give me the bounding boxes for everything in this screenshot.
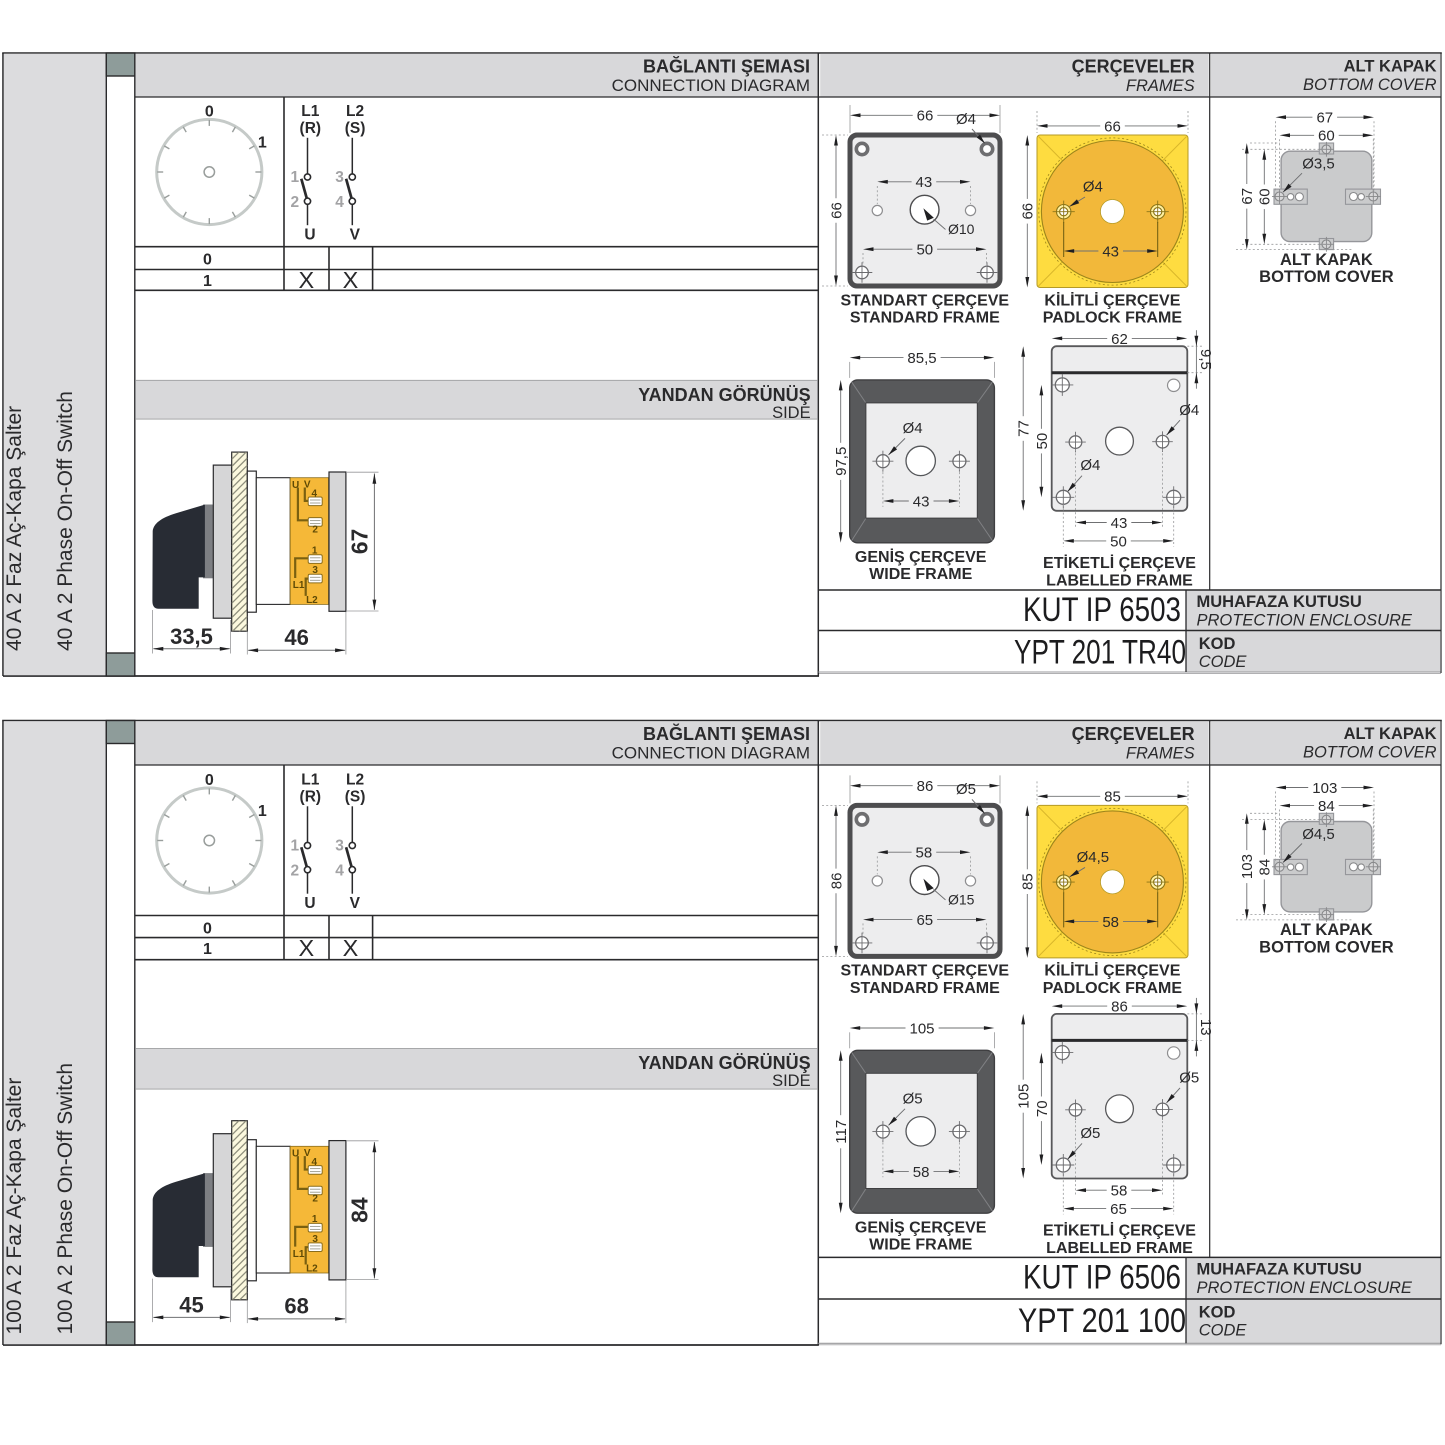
svg-text:CODE: CODE [1199,653,1248,671]
svg-text:LABELLED FRAME: LABELLED FRAME [1046,1240,1193,1257]
svg-text:BOTTOM COVER: BOTTOM COVER [1259,939,1394,957]
svg-text:KUT IP 6503: KUT IP 6503 [1023,591,1181,629]
svg-text:BAĞLANTI ŞEMASI: BAĞLANTI ŞEMASI [643,56,810,77]
svg-text:Ø4: Ø4 [1083,179,1103,196]
svg-text:PADLOCK FRAME: PADLOCK FRAME [1043,310,1183,327]
svg-text:13: 13 [1197,1019,1214,1036]
svg-text:GENİŞ ÇERÇEVE: GENİŞ ÇERÇEVE [855,1218,987,1236]
svg-text:Ø5: Ø5 [1080,1125,1100,1142]
svg-text:66: 66 [1104,118,1121,135]
svg-text:Ø5: Ø5 [956,781,976,798]
svg-text:Ø4,5: Ø4,5 [1077,849,1110,866]
svg-text:85: 85 [1020,873,1037,890]
svg-text:STANDART ÇERÇEVE: STANDART ÇERÇEVE [840,963,1009,980]
svg-text:1: 1 [290,169,299,186]
svg-text:(R): (R) [300,120,322,137]
svg-text:58: 58 [913,1164,930,1181]
svg-text:L1: L1 [293,1249,305,1260]
svg-text:L2: L2 [346,772,364,789]
svg-text:X: X [343,935,359,961]
svg-text:L1: L1 [293,580,305,591]
svg-text:0: 0 [203,252,212,269]
svg-text:58: 58 [1111,1183,1128,1200]
svg-text:L2: L2 [346,103,364,120]
svg-text:33,5: 33,5 [170,624,213,649]
svg-text:U: U [304,227,315,244]
svg-text:105: 105 [1016,1084,1033,1109]
svg-text:(S): (S) [345,788,366,805]
svg-text:84: 84 [1257,859,1274,876]
svg-text:3: 3 [312,565,318,576]
svg-text:Ø3,5: Ø3,5 [1302,156,1335,173]
svg-text:BOTTOM COVER: BOTTOM COVER [1259,268,1394,286]
svg-text:85,5: 85,5 [907,350,936,367]
svg-text:1: 1 [258,135,267,152]
svg-text:103: 103 [1239,854,1256,879]
svg-text:MUHAFAZA KUTUSU: MUHAFAZA KUTUSU [1197,593,1362,611]
svg-text:STANDARD FRAME: STANDARD FRAME [850,310,1000,327]
svg-text:3: 3 [335,838,344,855]
svg-text:(R): (R) [300,788,322,805]
svg-text:68: 68 [284,1294,308,1319]
svg-text:BOTTOM COVER: BOTTOM COVER [1303,76,1437,94]
svg-text:KOD: KOD [1199,635,1236,653]
svg-text:ALT KAPAK: ALT KAPAK [1280,251,1373,269]
svg-text:3: 3 [312,1234,318,1245]
svg-text:SIDE: SIDE [772,1072,811,1090]
svg-text:85: 85 [1104,789,1121,806]
svg-text:2: 2 [290,194,299,211]
svg-text:1: 1 [312,1214,318,1225]
svg-text:KİLİTLİ ÇERÇEVE: KİLİTLİ ÇERÇEVE [1044,962,1180,980]
svg-text:43: 43 [1111,515,1128,532]
svg-text:SIDE: SIDE [772,404,811,422]
svg-text:MUHAFAZA KUTUSU: MUHAFAZA KUTUSU [1197,1260,1362,1278]
svg-text:U: U [292,1148,299,1159]
svg-text:1: 1 [203,273,212,290]
svg-text:86: 86 [1111,999,1128,1016]
svg-text:YANDAN GÖRÜNÜŞ: YANDAN GÖRÜNÜŞ [638,385,810,405]
svg-text:LABELLED FRAME: LABELLED FRAME [1046,572,1193,589]
svg-text:45: 45 [179,1293,203,1318]
svg-text:PROTECTION ENCLOSURE: PROTECTION ENCLOSURE [1197,1279,1413,1297]
svg-text:YPT 201 TR40: YPT 201 TR40 [1014,634,1186,672]
svg-text:ETİKETLİ ÇERÇEVE: ETİKETLİ ÇERÇEVE [1043,1222,1196,1240]
svg-text:66: 66 [1020,203,1037,220]
svg-text:40 A 2 Faz Aç-Kapa Şalter: 40 A 2 Faz Aç-Kapa Şalter [3,406,26,651]
svg-text:3: 3 [335,169,344,186]
svg-text:GENİŞ ÇERÇEVE: GENİŞ ÇERÇEVE [855,548,987,566]
svg-text:65: 65 [1110,1201,1127,1218]
svg-text:V: V [350,895,361,912]
svg-text:PROTECTION ENCLOSURE: PROTECTION ENCLOSURE [1197,612,1413,630]
svg-text:Ø4: Ø4 [1080,457,1100,474]
svg-text:2: 2 [312,525,318,536]
svg-text:WIDE FRAME: WIDE FRAME [869,566,972,583]
svg-text:BAĞLANTI ŞEMASI: BAĞLANTI ŞEMASI [643,723,810,744]
svg-text:43: 43 [1102,243,1119,260]
svg-text:Ø15: Ø15 [948,891,975,907]
svg-text:2: 2 [312,1193,318,1204]
svg-text:50: 50 [1110,533,1127,550]
svg-text:105: 105 [909,1020,934,1037]
svg-text:YPT 201 100: YPT 201 100 [1018,1302,1186,1340]
svg-text:Ø4,5: Ø4,5 [1302,826,1335,843]
svg-text:Ø10: Ø10 [948,221,975,237]
svg-text:0: 0 [205,772,214,789]
svg-text:77: 77 [1016,420,1033,437]
svg-text:2: 2 [290,862,299,879]
svg-text:V: V [304,1148,311,1159]
svg-text:43: 43 [916,174,933,191]
svg-text:V: V [304,479,311,490]
svg-text:50: 50 [1034,433,1051,450]
svg-text:40 A 2 Phase On-Off Switch: 40 A 2 Phase On-Off Switch [54,391,77,651]
svg-text:0: 0 [205,104,214,121]
svg-text:STANDART ÇERÇEVE: STANDART ÇERÇEVE [840,292,1009,309]
svg-text:1: 1 [290,838,299,855]
svg-text:KUT IP 6506: KUT IP 6506 [1023,1258,1181,1296]
svg-text:FRAMES: FRAMES [1126,77,1195,95]
svg-text:Ø5: Ø5 [1179,1070,1199,1087]
svg-text:Ø4: Ø4 [1179,402,1199,419]
svg-text:ALT KAPAK: ALT KAPAK [1344,58,1437,76]
svg-text:YANDAN GÖRÜNÜŞ: YANDAN GÖRÜNÜŞ [638,1053,810,1073]
svg-text:60: 60 [1257,188,1274,205]
svg-text:ALT KAPAK: ALT KAPAK [1344,725,1437,743]
svg-text:ETİKETLİ ÇERÇEVE: ETİKETLİ ÇERÇEVE [1043,554,1196,572]
svg-text:62: 62 [1111,331,1128,348]
svg-text:100 A 2 Phase On-Off Switch: 100 A 2 Phase On-Off Switch [54,1063,77,1335]
svg-text:FRAMES: FRAMES [1126,745,1195,763]
svg-text:0: 0 [203,920,212,937]
svg-text:STANDARD FRAME: STANDARD FRAME [850,980,1000,997]
svg-text:60: 60 [1318,128,1335,145]
svg-text:4: 4 [312,1157,318,1168]
svg-text:67: 67 [1239,188,1256,205]
svg-text:(S): (S) [345,120,366,137]
svg-text:X: X [343,267,359,293]
svg-text:65: 65 [916,912,933,929]
svg-text:67: 67 [1316,110,1333,127]
svg-text:66: 66 [917,108,934,125]
svg-text:4: 4 [312,489,318,500]
svg-text:WIDE FRAME: WIDE FRAME [869,1237,972,1254]
svg-text:PADLOCK FRAME: PADLOCK FRAME [1043,980,1183,997]
svg-text:ALT KAPAK: ALT KAPAK [1280,921,1373,939]
svg-text:Ø4: Ø4 [903,420,923,437]
svg-text:1: 1 [312,546,318,557]
svg-text:117: 117 [833,1120,850,1144]
svg-text:67: 67 [347,529,373,555]
svg-text:58: 58 [1102,914,1119,931]
svg-text:L1: L1 [301,103,319,120]
svg-text:84: 84 [347,1197,373,1223]
svg-text:L2: L2 [306,595,318,606]
svg-text:L1: L1 [301,772,319,789]
svg-text:KİLİTLİ ÇERÇEVE: KİLİTLİ ÇERÇEVE [1044,291,1180,309]
svg-text:66: 66 [828,202,845,219]
svg-text:1: 1 [258,803,267,820]
svg-text:KOD: KOD [1199,1304,1236,1322]
svg-text:CODE: CODE [1199,1322,1248,1340]
svg-text:Ø5: Ø5 [903,1090,923,1107]
svg-text:X: X [298,267,314,293]
svg-text:50: 50 [916,242,933,259]
svg-text:L2: L2 [306,1263,318,1274]
svg-text:CONNECTION DIAGRAM: CONNECTION DIAGRAM [612,76,810,95]
svg-text:4: 4 [335,194,344,211]
svg-text:CONNECTION DIAGRAM: CONNECTION DIAGRAM [612,744,810,763]
svg-text:9,5: 9,5 [1197,349,1214,370]
svg-text:Ø4: Ø4 [956,111,976,128]
svg-text:1: 1 [203,941,212,958]
svg-text:100 A 2 Faz Aç-Kapa Şalter: 100 A 2 Faz Aç-Kapa Şalter [3,1078,26,1335]
svg-text:U: U [292,480,299,491]
svg-text:ÇERÇEVELER: ÇERÇEVELER [1072,724,1195,744]
svg-text:86: 86 [917,778,934,795]
svg-text:ÇERÇEVELER: ÇERÇEVELER [1072,57,1195,77]
svg-text:X: X [298,935,314,961]
svg-text:V: V [350,227,361,244]
svg-text:43: 43 [913,493,930,510]
svg-text:4: 4 [335,862,344,879]
svg-text:97,5: 97,5 [833,447,850,476]
svg-text:86: 86 [828,873,845,890]
svg-text:84: 84 [1318,798,1335,815]
svg-text:46: 46 [284,625,308,650]
svg-text:70: 70 [1034,1100,1051,1117]
svg-text:U: U [304,895,315,912]
svg-text:58: 58 [916,845,933,862]
svg-text:BOTTOM COVER: BOTTOM COVER [1303,744,1437,762]
svg-text:103: 103 [1312,780,1337,797]
